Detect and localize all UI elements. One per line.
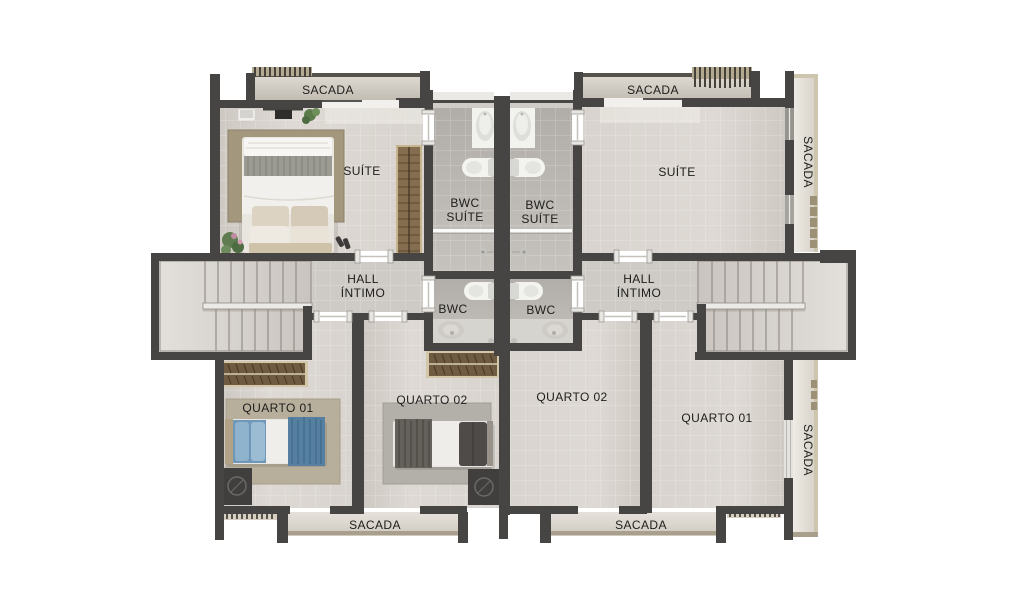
svg-text:ÍNTIMO: ÍNTIMO [341,285,385,300]
svg-text:BWC: BWC [525,198,554,212]
svg-text:SUÍTE: SUÍTE [521,211,558,226]
svg-text:SACADA: SACADA [801,424,815,476]
svg-text:SACADA: SACADA [801,136,815,188]
svg-text:QUARTO 02: QUARTO 02 [396,393,467,407]
svg-text:SACADA: SACADA [349,518,401,532]
svg-text:SACADA: SACADA [615,518,667,532]
svg-text:QUARTO 01: QUARTO 01 [681,411,752,425]
svg-text:SUÍTE: SUÍTE [446,209,483,224]
svg-text:BWC: BWC [450,196,479,210]
svg-text:SACADA: SACADA [302,83,354,97]
svg-text:SACADA: SACADA [627,83,679,97]
svg-text:HALL: HALL [623,272,655,286]
svg-text:SUÍTE: SUÍTE [343,163,380,178]
svg-text:QUARTO 02: QUARTO 02 [536,390,607,404]
svg-text:QUARTO 01: QUARTO 01 [242,401,313,415]
svg-text:BWC: BWC [526,303,555,317]
svg-text:HALL: HALL [347,272,379,286]
svg-text:ÍNTIMO: ÍNTIMO [617,285,661,300]
svg-text:BWC: BWC [438,302,467,316]
svg-text:SUÍTE: SUÍTE [658,164,695,179]
